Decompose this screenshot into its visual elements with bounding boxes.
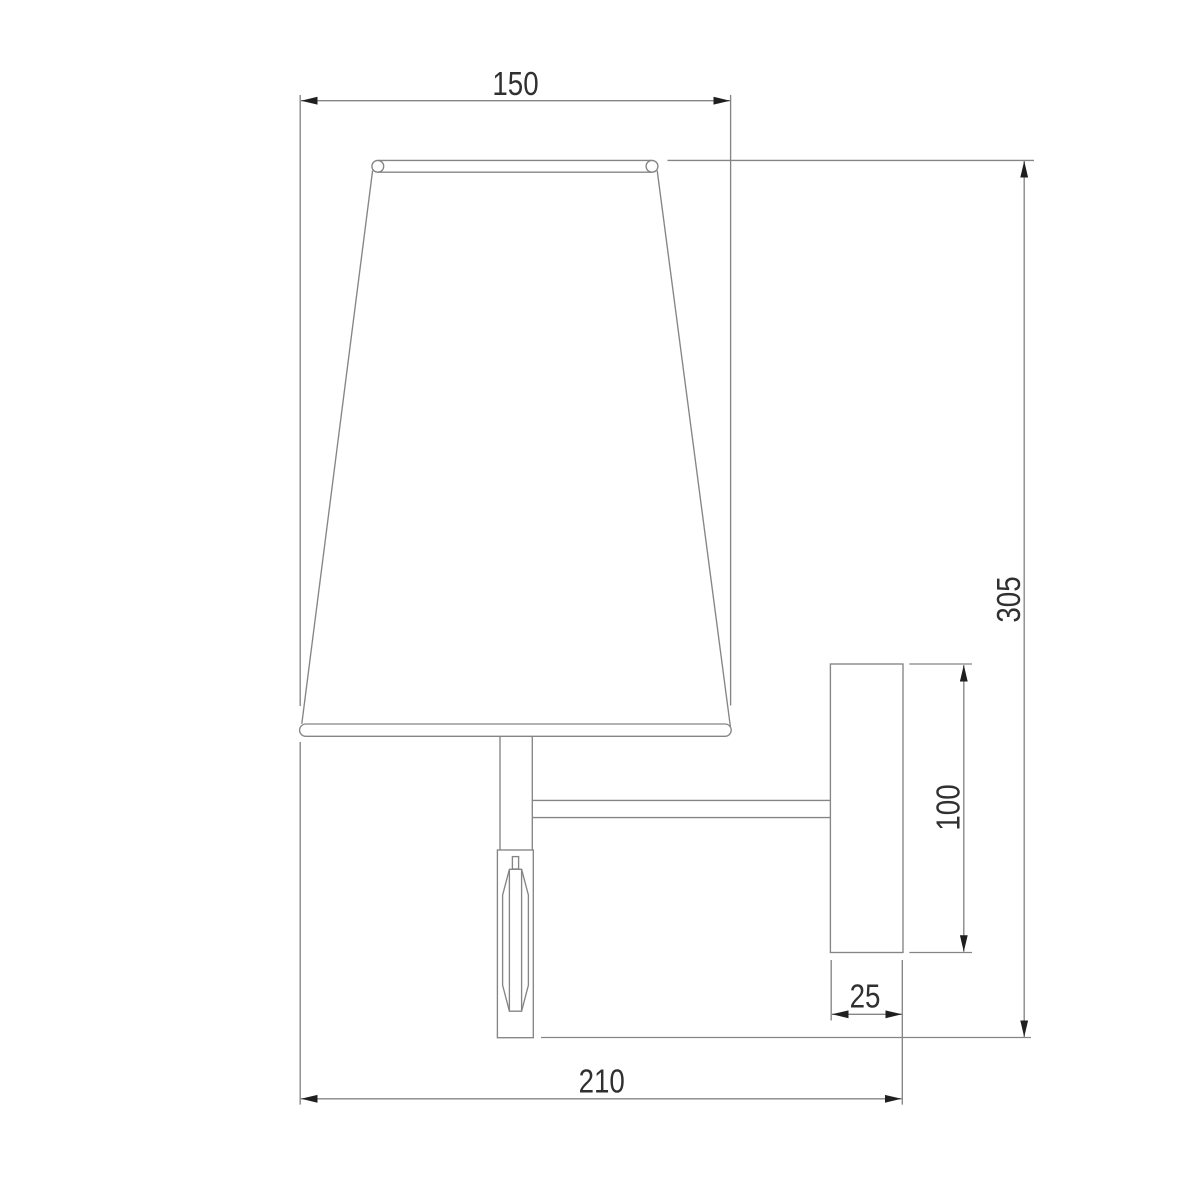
- svg-text:25: 25: [850, 978, 881, 1015]
- svg-text:150: 150: [492, 66, 538, 103]
- svg-text:210: 210: [579, 1063, 625, 1100]
- svg-text:305: 305: [991, 576, 1028, 622]
- svg-text:100: 100: [930, 784, 967, 830]
